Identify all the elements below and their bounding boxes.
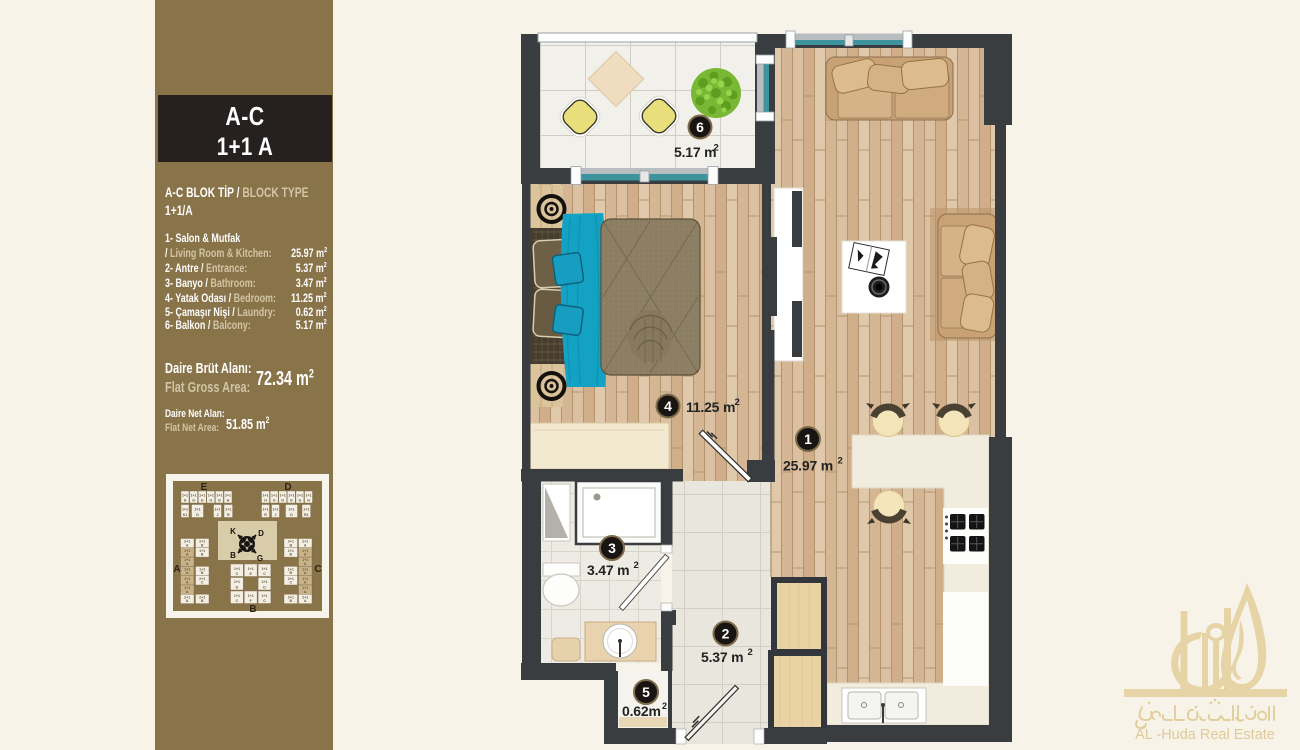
svg-text:G: G <box>218 499 221 503</box>
svg-text:A: A <box>186 553 189 557</box>
svg-text:5.17 m: 5.17 m <box>674 144 716 160</box>
svg-text:C: C <box>263 572 266 576</box>
svg-text:1+1: 1+1 <box>234 567 240 571</box>
svg-text:2: 2 <box>735 397 740 408</box>
svg-text:R: R <box>264 513 267 517</box>
svg-text:1+1: 1+1 <box>261 580 267 584</box>
svg-text:C: C <box>236 599 239 603</box>
svg-text:C: C <box>236 572 239 576</box>
svg-text:1+1: 1+1 <box>225 494 231 498</box>
svg-text:C: C <box>263 599 266 603</box>
svg-text:5.37 m: 5.37 m <box>701 649 743 665</box>
svg-text:B: B <box>289 599 292 603</box>
svg-text:1+1: 1+1 <box>214 508 220 512</box>
svg-text:AL -Huda Real Estate: AL -Huda Real Estate <box>1135 727 1275 743</box>
svg-text:1+1: 1+1 <box>225 508 231 512</box>
svg-text:B: B <box>201 553 204 557</box>
svg-text:2: 2 <box>634 560 639 571</box>
svg-text:2: 2 <box>838 456 843 467</box>
svg-text:A: A <box>304 543 307 547</box>
svg-text:D: D <box>196 513 199 517</box>
svg-text:1+1: 1+1 <box>191 494 197 498</box>
svg-text:D: D <box>290 513 293 517</box>
svg-text:25.97 m: 25.97 m <box>783 458 833 474</box>
svg-text:1+1: 1+1 <box>305 494 311 498</box>
svg-text:C: C <box>201 581 204 585</box>
svg-text:J: J <box>217 513 219 517</box>
svg-text:3: 3 <box>608 540 616 556</box>
svg-text:1+1: 1+1 <box>248 567 254 571</box>
svg-text:B: B <box>249 604 256 615</box>
svg-text:A: A <box>186 590 189 594</box>
svg-text:A: A <box>186 571 189 575</box>
svg-text:2: 2 <box>748 647 753 658</box>
svg-text:2: 2 <box>714 143 719 154</box>
svg-text:2: 2 <box>662 701 667 711</box>
svg-text:1: 1 <box>804 431 812 447</box>
svg-text:2: 2 <box>722 626 730 642</box>
svg-text:1+1: 1+1 <box>288 494 294 498</box>
svg-text:D: D <box>258 529 264 538</box>
svg-text:1+1: 1+1 <box>182 494 188 498</box>
svg-text:1+1: 1+1 <box>303 508 309 512</box>
svg-text:A: A <box>304 590 307 594</box>
svg-text:B: B <box>201 571 204 575</box>
svg-text:1+1: 1+1 <box>216 494 222 498</box>
svg-text:2+1: 2+1 <box>194 508 200 512</box>
svg-text:5: 5 <box>642 684 650 700</box>
svg-text:A: A <box>304 571 307 575</box>
svg-text:1+1: 1+1 <box>248 594 254 598</box>
svg-text:G: G <box>257 554 263 563</box>
svg-text:H: H <box>264 499 267 503</box>
svg-text:H: H <box>307 499 310 503</box>
svg-text:B: B <box>230 551 236 560</box>
svg-text:1+1: 1+1 <box>208 494 214 498</box>
svg-text:C: C <box>289 581 292 585</box>
svg-text:1+1: 1+1 <box>262 508 268 512</box>
svg-text:B: B <box>201 543 204 547</box>
svg-text:G: G <box>201 499 204 503</box>
svg-text:A: A <box>186 581 189 585</box>
svg-text:E: E <box>201 482 208 493</box>
svg-text:1+1: 1+1 <box>261 567 267 571</box>
svg-text:A: A <box>304 553 307 557</box>
svg-text:B: B <box>289 571 292 575</box>
svg-text:B: B <box>201 599 204 603</box>
svg-text:G: G <box>273 499 276 503</box>
svg-text:C: C <box>314 564 321 575</box>
svg-text:G: G <box>209 499 212 503</box>
svg-text:1+1: 1+1 <box>199 494 205 498</box>
svg-text:D: D <box>263 586 266 590</box>
svg-text:2+1: 2+1 <box>288 508 294 512</box>
svg-text:G: G <box>290 499 293 503</box>
svg-text:1+1: 1+1 <box>272 508 278 512</box>
svg-text:D: D <box>236 586 239 590</box>
svg-text:A: A <box>186 543 189 547</box>
svg-text:B: B <box>289 553 292 557</box>
svg-text:3.47 m: 3.47 m <box>587 562 629 578</box>
svg-text:G: G <box>281 499 284 503</box>
svg-text:G: G <box>192 499 195 503</box>
svg-text:A: A <box>304 599 307 603</box>
svg-text:A: A <box>186 562 189 566</box>
svg-text:A: A <box>173 564 180 575</box>
svg-text:A: A <box>304 581 307 585</box>
svg-text:K: K <box>230 527 236 536</box>
svg-text:B: B <box>289 543 292 547</box>
svg-text:1+1: 1+1 <box>280 494 286 498</box>
svg-text:1+1: 1+1 <box>271 494 277 498</box>
svg-text:R1: R1 <box>304 513 309 517</box>
svg-text:K1: K1 <box>183 513 188 517</box>
svg-text:R: R <box>227 513 230 517</box>
svg-text:1+1: 1+1 <box>182 508 188 512</box>
svg-text:A: A <box>186 599 189 603</box>
svg-text:0.62m: 0.62m <box>622 703 661 719</box>
svg-text:H: H <box>184 499 187 503</box>
svg-text:1+1: 1+1 <box>234 580 240 584</box>
svg-text:H: H <box>227 499 230 503</box>
svg-text:1+1: 1+1 <box>234 594 240 598</box>
svg-text:4: 4 <box>664 398 672 414</box>
svg-text:D: D <box>284 482 291 493</box>
svg-text:J: J <box>275 513 277 517</box>
svg-text:6: 6 <box>696 119 704 135</box>
svg-text:G: G <box>299 499 302 503</box>
svg-text:A: A <box>304 562 307 566</box>
svg-text:1+1: 1+1 <box>297 494 303 498</box>
svg-text:11.25 m: 11.25 m <box>686 399 735 415</box>
svg-text:1+1: 1+1 <box>262 494 268 498</box>
svg-text:1+1: 1+1 <box>261 594 267 598</box>
